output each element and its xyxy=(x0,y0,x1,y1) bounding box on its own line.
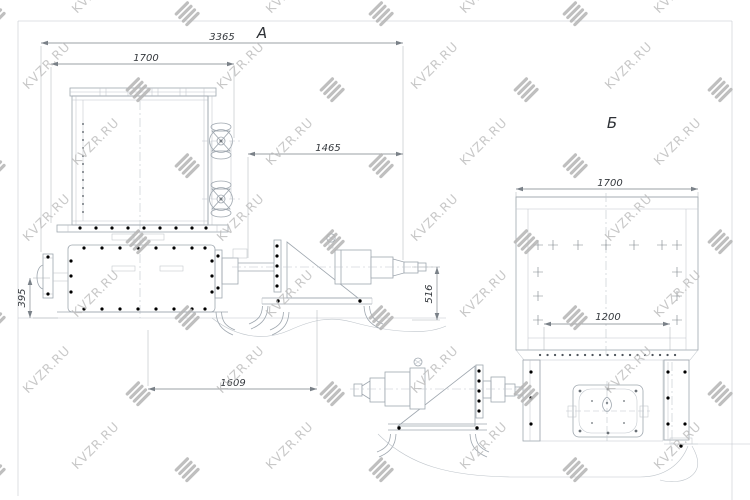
view-b-dimensions: 1700 1200 xyxy=(516,178,698,350)
watermark-text: KVZR.RU xyxy=(69,115,122,168)
watermark-text: KVZR.RU xyxy=(651,115,704,168)
motor-drive xyxy=(232,234,440,304)
watermark-text: KVZR.RU xyxy=(263,419,316,472)
watermark-logo-icon xyxy=(174,457,200,483)
watermark-logo-icon xyxy=(0,1,6,27)
watermark-logo-icon xyxy=(0,305,6,331)
watermark-text: KVZR.RU xyxy=(457,267,510,320)
watermark-text: KVZR.RU xyxy=(20,191,73,244)
watermark-logo-icon xyxy=(707,229,733,255)
watermark-text: KVZR.RU xyxy=(457,0,510,16)
watermark-text: KVZR.RU xyxy=(457,115,510,168)
watermark-text: KVZR.RU xyxy=(457,419,510,472)
watermark-logo-icon xyxy=(368,1,394,27)
left-bearing xyxy=(37,254,68,298)
watermark-text: KVZR.RU xyxy=(263,0,316,16)
watermark-text: KVZR.RU xyxy=(263,115,316,168)
watermark-logo-icon xyxy=(562,1,588,27)
watermark-logo-icon xyxy=(368,457,394,483)
watermark-logo-icon xyxy=(368,153,394,179)
watermark-text: KVZR.RU xyxy=(602,39,655,92)
dim-b-opening: 1200 xyxy=(595,312,620,323)
watermark-text: KVZR.RU xyxy=(20,39,73,92)
dim-b-body: 1700 xyxy=(597,178,622,189)
dim-a-body: 1700 xyxy=(133,53,158,64)
watermark-text: KVZR.RU xyxy=(602,343,655,396)
view-b-bolts xyxy=(396,369,688,454)
watermark-logo-icon xyxy=(125,381,151,407)
dim-a-drive-height: 516 xyxy=(424,284,435,303)
watermark-logo-icon xyxy=(319,77,345,103)
technical-drawing-page: А xyxy=(0,0,750,500)
watermark-layer: KVZR.RUKVZR.RUKVZR.RUKVZR.RUKVZR.RUKVZR.… xyxy=(0,0,733,483)
view-a-label: А xyxy=(256,24,267,42)
watermark-logo-icon xyxy=(513,229,539,255)
dim-a-left-height: 395 xyxy=(17,288,28,307)
watermark-logo-icon xyxy=(125,77,151,103)
watermark-text: KVZR.RU xyxy=(20,343,73,396)
watermark-text: KVZR.RU xyxy=(214,39,267,92)
view-b-label: Б xyxy=(607,114,617,132)
watermark-text: KVZR.RU xyxy=(408,39,461,92)
watermark-logo-icon xyxy=(319,381,345,407)
dim-a-drive: 1465 xyxy=(315,143,340,154)
watermark-logo-icon xyxy=(174,153,200,179)
watermark-text: KVZR.RU xyxy=(69,0,122,16)
watermark-text: KVZR.RU xyxy=(651,0,704,16)
watermark-logo-icon xyxy=(0,153,6,179)
watermark-logo-icon xyxy=(562,153,588,179)
watermark-logo-icon xyxy=(562,457,588,483)
watermark-logo-icon xyxy=(707,381,733,407)
skid-feet xyxy=(216,306,383,335)
watermark-logo-icon xyxy=(707,77,733,103)
watermark-logo-icon xyxy=(0,457,6,483)
engineering-drawing: А xyxy=(0,0,750,500)
dim-a-overall: 3365 xyxy=(209,32,234,43)
watermark-text: KVZR.RU xyxy=(651,419,704,472)
watermark-logo-icon xyxy=(513,381,539,407)
watermark-text: KVZR.RU xyxy=(602,191,655,244)
watermark-logo-icon xyxy=(513,77,539,103)
coupling xyxy=(215,249,274,298)
watermark-logo-icon xyxy=(125,229,151,255)
watermark-text: KVZR.RU xyxy=(408,191,461,244)
watermark-text: KVZR.RU xyxy=(69,419,122,472)
watermark-logo-icon xyxy=(562,305,588,331)
watermark-logo-icon xyxy=(174,1,200,27)
